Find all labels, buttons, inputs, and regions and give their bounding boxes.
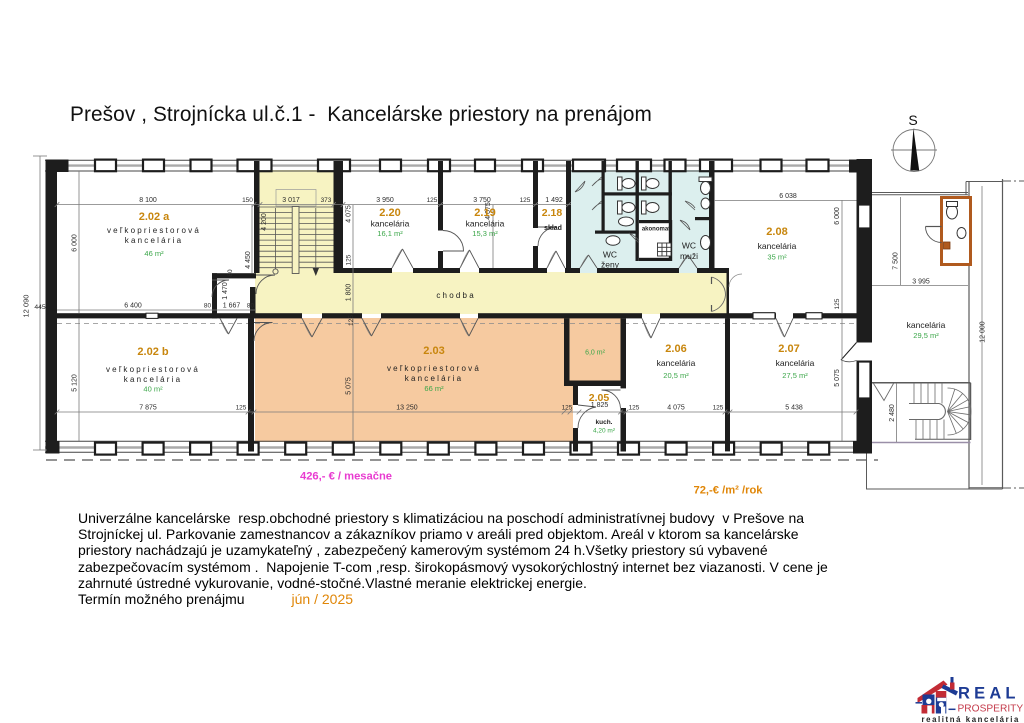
svg-text:REAL: REAL	[958, 685, 1020, 703]
svg-text:PROSPERITY: PROSPERITY	[958, 704, 1024, 715]
svg-text:realitná kancelária: realitná kancelária	[922, 715, 1020, 723]
